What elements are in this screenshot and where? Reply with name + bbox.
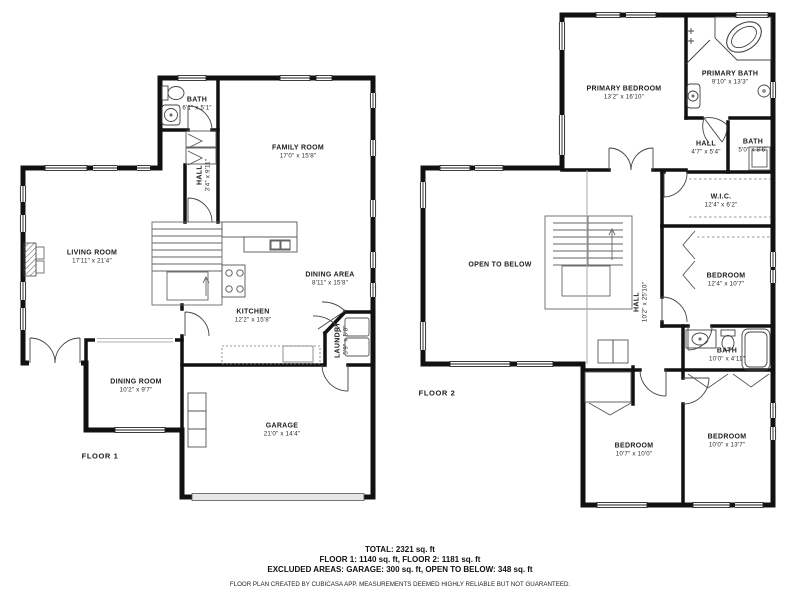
primary-bath-fixtures	[686, 15, 771, 108]
room-label-laundry: LAUNDRY 5'9" x 5'8"	[334, 322, 351, 358]
floor2-tag: FLOOR 2	[419, 389, 456, 398]
room-label-hall-f1: HALL 3'4" x 9'11"	[196, 159, 213, 191]
room-label-bedroom-bottom-right: BEDROOM 10'0" x 13'7"	[708, 433, 747, 450]
room-label-hall-main: HALL 10'2" x 25'10"	[633, 282, 650, 322]
dining-cased-opening	[95, 337, 175, 344]
room-label-primary-bath: PRIMARY BATH 9'10" x 13'3"	[702, 70, 758, 87]
room-label-bath-upper: BATH 5'0" x 8'6"	[738, 138, 767, 155]
floor1-tag: FLOOR 1	[82, 452, 119, 461]
room-label-bath-f1: BATH 6'1" x 5'1"	[182, 96, 211, 113]
kitchen-counter	[222, 222, 297, 252]
summary-disclaimer: FLOOR PLAN CREATED BY CUBICASA APP. MEAS…	[0, 581, 800, 588]
floor2-closets	[585, 179, 771, 415]
fireplace	[24, 243, 36, 276]
kitchen-lower-counter	[222, 346, 320, 364]
room-label-family-room: FAMILY ROOM 17'0" x 15'8"	[272, 144, 324, 161]
floor1-exterior-walls	[23, 78, 373, 497]
garage-closet	[188, 393, 206, 447]
floorplan-page: BATH 6'1" x 5'1" HALL 3'4" x 9'11" FAMIL…	[0, 0, 800, 600]
floor1-bath-fixtures	[162, 86, 184, 125]
room-label-open-to-below: OPEN TO BELOW	[468, 261, 531, 270]
room-label-bedroom-bottom-left: BEDROOM 10'7" x 10'0"	[615, 442, 654, 459]
summary-total: TOTAL: 2321 sq. ft	[0, 545, 800, 554]
garage-door	[192, 494, 364, 501]
room-label-bath-mid: BATH 10'0" x 4'11"	[709, 347, 745, 364]
fireplace-box2	[36, 261, 44, 273]
summary-excluded: EXCLUDED AREAS: GARAGE: 300 sq. ft, OPEN…	[0, 565, 800, 574]
stove	[222, 265, 245, 297]
floorplan-drawing	[0, 0, 800, 600]
room-label-kitchen: KITCHEN 12'2" x 15'8"	[235, 308, 272, 325]
summary-floors: FLOOR 1: 1140 sq. ft, FLOOR 2: 1181 sq. …	[0, 555, 800, 564]
room-label-wic: W.I.C. 12'4" x 6'2"	[705, 193, 738, 210]
room-label-hall-upper: HALL 4'7" x 5'4"	[691, 140, 720, 157]
room-label-dining-area: DINING AREA 8'11" x 15'8"	[305, 271, 354, 288]
room-label-primary-bedroom: PRIMARY BEDROOM 13'2" x 16'10"	[587, 85, 662, 102]
room-label-bedroom-mid: BEDROOM 12'4" x 10'7"	[707, 272, 746, 289]
room-label-garage: GARAGE 21'0" x 14'4"	[264, 422, 301, 439]
room-label-dining-room: DINING ROOM 10'2" x 9'7"	[110, 378, 162, 395]
floor2-stairs	[545, 216, 632, 309]
room-label-living-room: LIVING ROOM 17'11" x 21'4"	[67, 249, 117, 266]
fireplace-box1	[36, 247, 44, 259]
floor1-stairs	[152, 222, 222, 305]
